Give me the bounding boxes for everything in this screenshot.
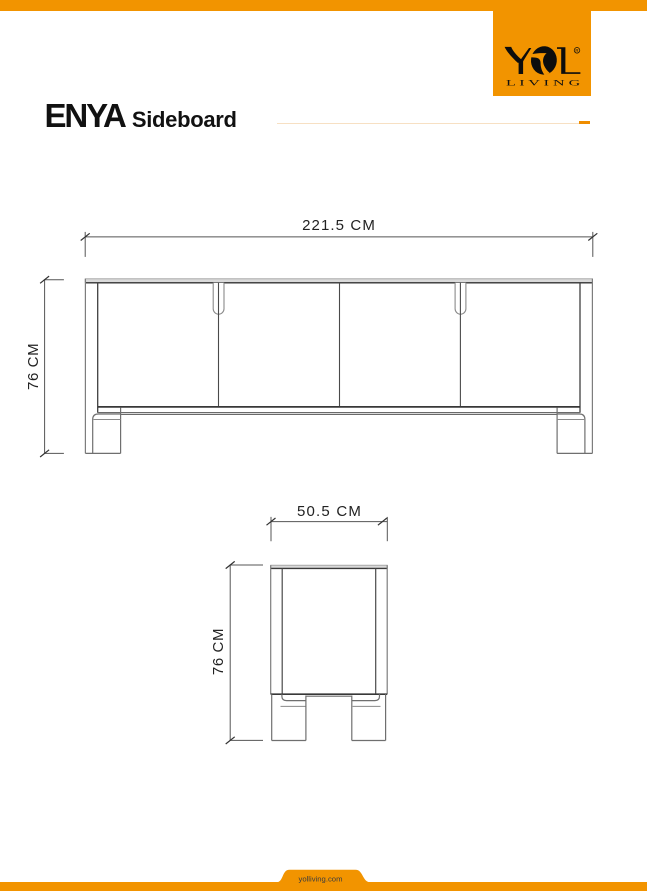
- svg-text:50.5 CM: 50.5 CM: [297, 503, 362, 520]
- svg-text:76 CM: 76 CM: [210, 628, 227, 675]
- svg-text:221.5 CM: 221.5 CM: [302, 217, 376, 234]
- svg-text:76 CM: 76 CM: [25, 343, 42, 390]
- svg-text:yolliving.com: yolliving.com: [298, 874, 342, 883]
